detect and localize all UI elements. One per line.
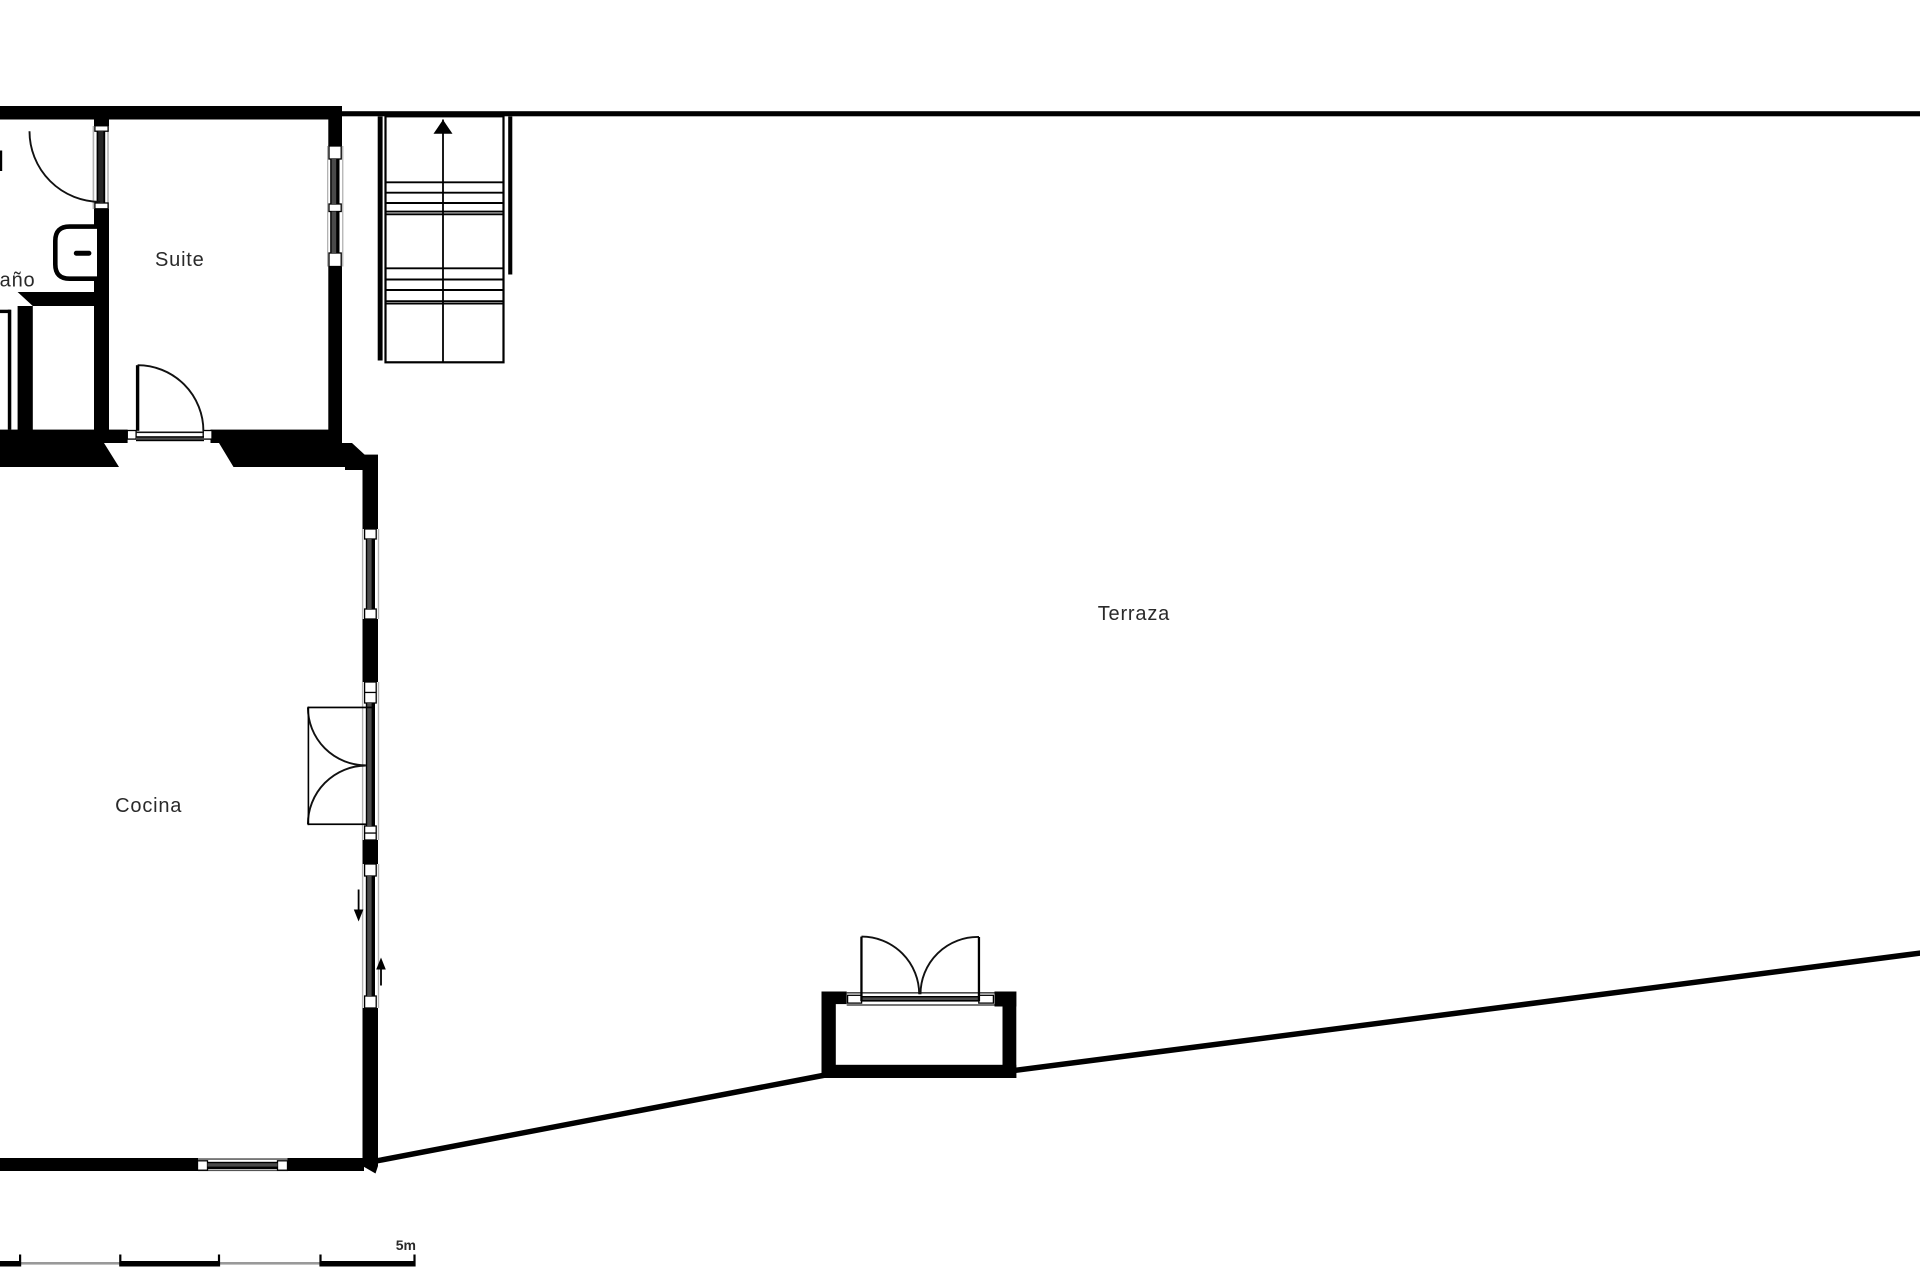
svg-text:Terraza: Terraza [1098, 603, 1170, 625]
svg-text:5m: 5m [396, 1237, 416, 1253]
svg-text:Cocina: Cocina [115, 795, 182, 817]
svg-text:Suite: Suite [155, 249, 205, 271]
svg-text:Baño: Baño [0, 269, 35, 291]
